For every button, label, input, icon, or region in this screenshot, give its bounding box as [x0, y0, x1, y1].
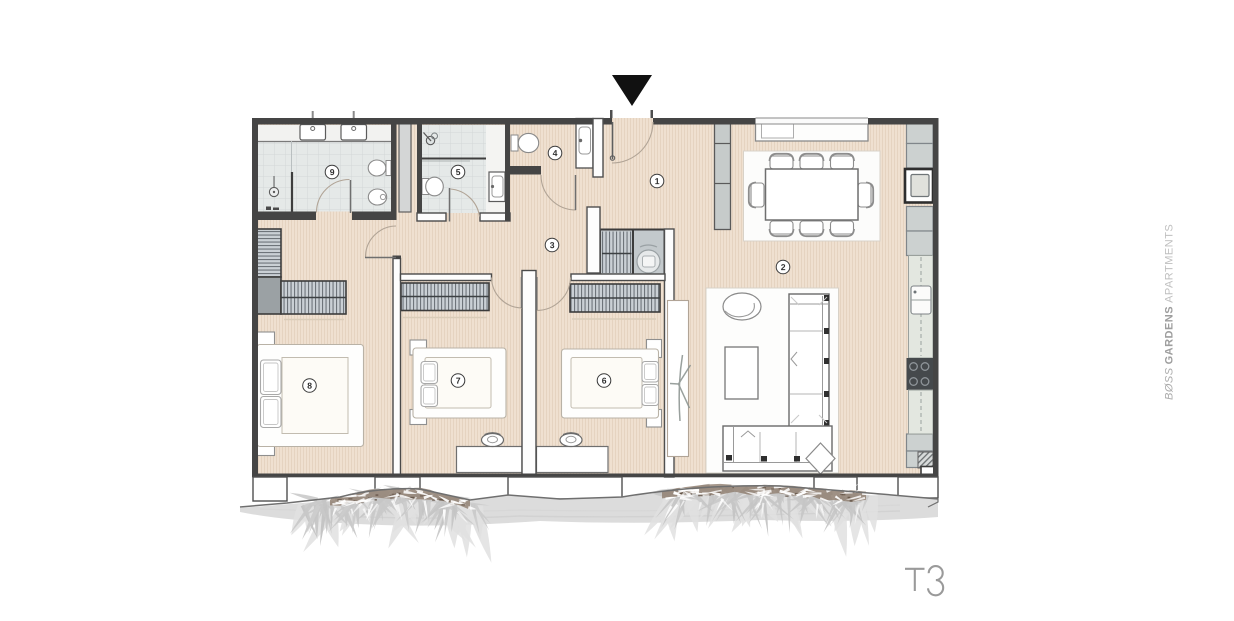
svg-text:BØSSGARDENSAPARTMENTS: BØSSGARDENSAPARTMENTS	[1164, 224, 1176, 400]
